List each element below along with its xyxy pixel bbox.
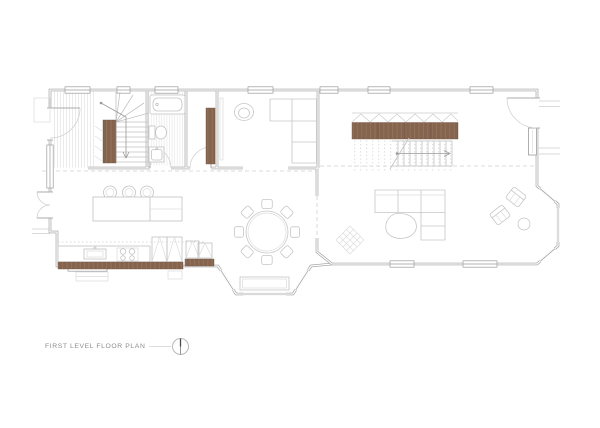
window-symbol: [65, 87, 90, 93]
fence-connection: [539, 101, 560, 154]
kitchen-counter: [58, 246, 150, 262]
title-underline: [149, 346, 171, 347]
window-symbol: [390, 261, 414, 267]
window-symbol: [155, 87, 178, 93]
window-symbol: [463, 261, 497, 267]
window-symbol: [117, 87, 130, 93]
window-symbol: [47, 145, 53, 188]
drawing-title: FIRST LEVEL FLOOR PLAN: [45, 343, 145, 350]
drawing-sheet: FIRST LEVEL FLOOR PLAN: [0, 0, 600, 428]
window-symbol: [470, 87, 493, 93]
coffee-table: [386, 213, 417, 238]
window-symbol: [368, 87, 390, 93]
sink: [149, 147, 164, 162]
window-symbol: [320, 87, 338, 93]
toilet: [149, 126, 167, 139]
bay-window-bench: [240, 277, 289, 290]
french-doors: [37, 192, 53, 218]
kitchen-island: [93, 197, 182, 221]
closet-wardrobe: [206, 108, 215, 164]
north-orientation-icon: [171, 337, 190, 356]
floor-plan-drawing: [0, 0, 600, 428]
bathtub: [150, 95, 185, 114]
title-block: FIRST LEVEL FLOOR PLAN: [45, 337, 190, 356]
window-symbol: [248, 87, 273, 93]
stair-wood-screen: [103, 120, 116, 163]
entry-hall-floor: [52, 92, 95, 168]
